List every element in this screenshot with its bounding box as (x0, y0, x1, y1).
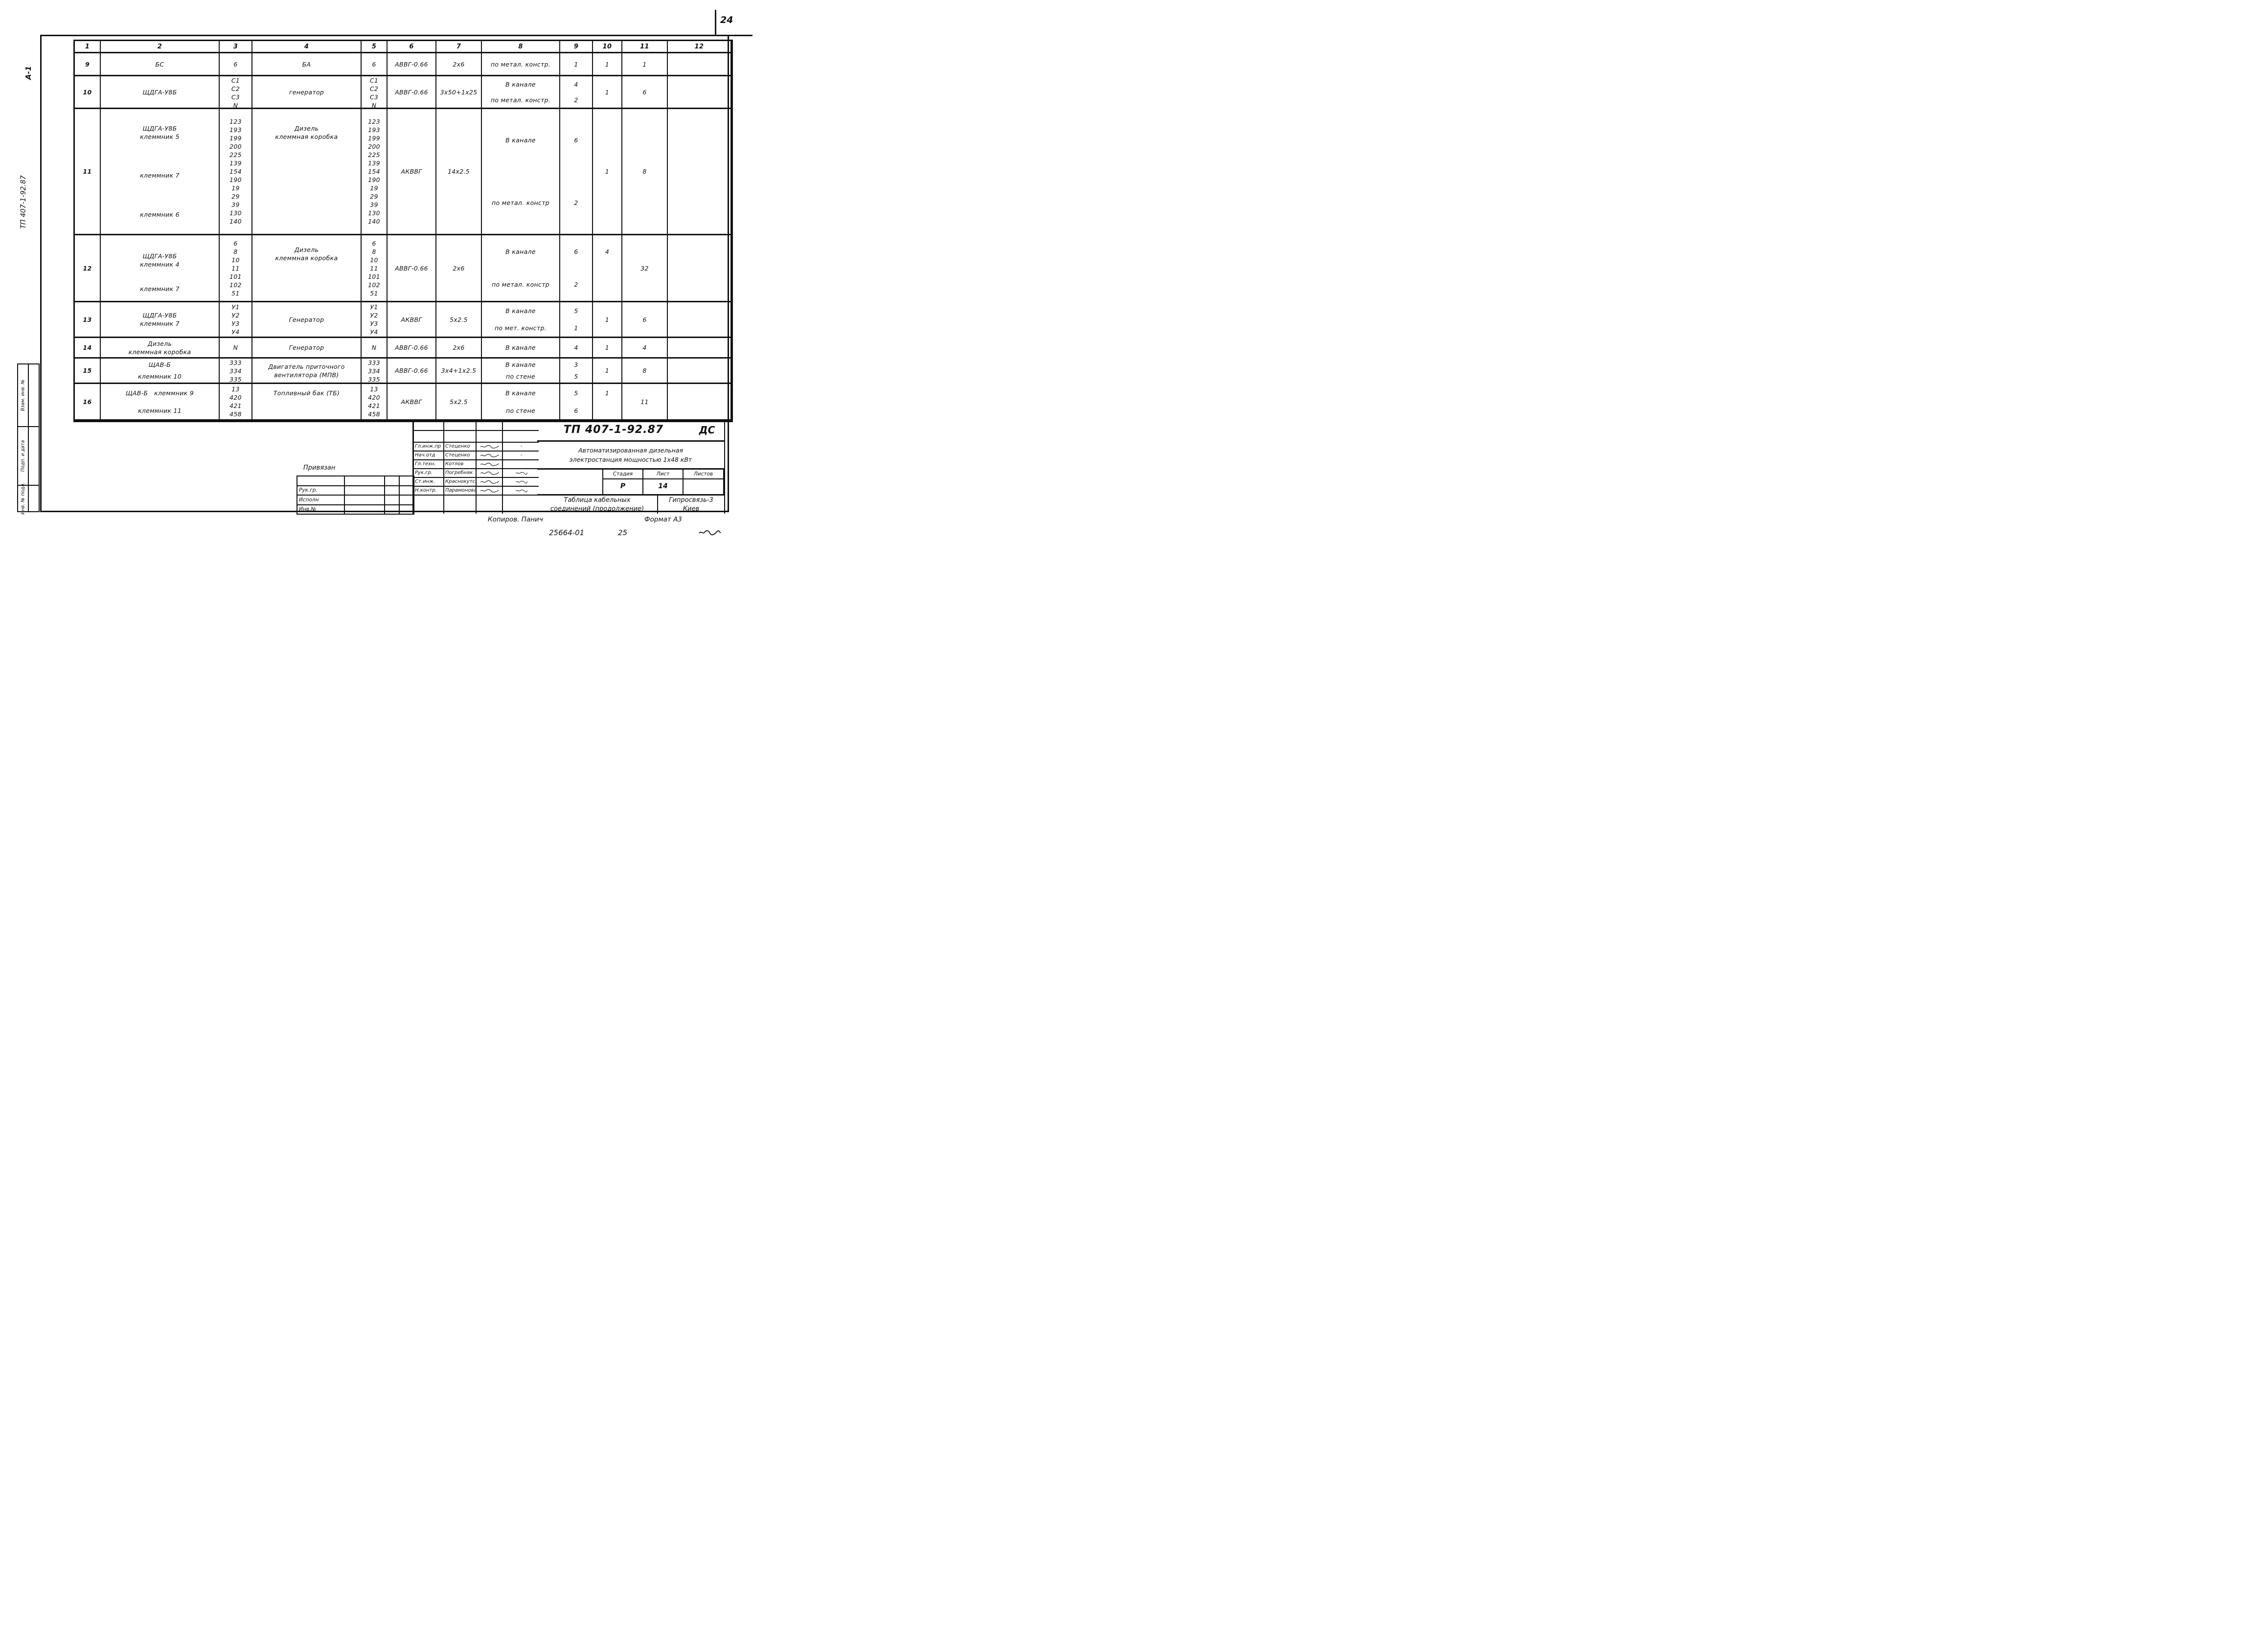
cell-r16-c6: АКВВГ (388, 384, 436, 421)
organization-box: Гипросвязь-3 Киев (658, 494, 724, 514)
cell-r9-c5: 6 (362, 53, 388, 76)
sig-empty-cell (444, 431, 477, 442)
cell-r16-c3: 13 420 421 458 (220, 384, 252, 421)
margin-stamp-label: Инв. № подл. (18, 486, 29, 511)
cell-r12-c2: ЩДГА-У8Б клеммник 4клеммник 7 (101, 235, 220, 302)
sig-empty-cell (444, 496, 477, 514)
sig-date-mark (503, 478, 539, 486)
cell-r15-c4: Двигатель приточного вентилятора (МПВ) (252, 359, 362, 384)
signature-scribble-icon (477, 452, 503, 459)
attach-empty-cell (400, 486, 412, 495)
cell-r9-c12 (668, 53, 731, 76)
sig-name: Стеценко (444, 443, 477, 451)
frame-top-extension-line (728, 35, 753, 36)
attach-empty-cell (345, 476, 385, 485)
cell-r16-c10: 1 (593, 384, 622, 421)
cell-r15-c8: В каналепо стене (482, 359, 560, 384)
cell-r9-c8: по метал. констр. (482, 53, 560, 76)
sig-role: Гл.инж.пр (414, 443, 444, 451)
cell-r10-c11: 6 (622, 76, 668, 109)
stage-value-1: Р (603, 479, 643, 494)
cell-r16-c2: ЩАВ-Б клеммник 9клеммник 11 (101, 384, 220, 421)
cell-r12-c4: Дизель клеммная коробка (252, 235, 362, 302)
header-col-5: 5 (362, 41, 388, 53)
cell-r15-c7: 3х4+1х2.5 (436, 359, 482, 384)
attach-empty-cell (345, 496, 385, 504)
cell-r14-c1: 14 (75, 338, 101, 359)
cell-r15-c1: 15 (75, 359, 101, 384)
cell-r13-c2: ЩДГА-У8Б клеммник 7 (101, 302, 220, 338)
copier-label: Копиров. Панич (488, 516, 543, 523)
header-col-9: 9 (560, 41, 593, 53)
cell-r11-c7: 14х2.5 (436, 109, 482, 235)
cell-r12-c1: 12 (75, 235, 101, 302)
cell-r12-c9: 62 (560, 235, 593, 302)
order-sheet-number: 25 (618, 528, 627, 537)
organization-line1: Гипросвязь-3 (658, 496, 724, 505)
page-number: 24 (720, 15, 733, 25)
cell-r11-c8: В каналепо метал. констр (482, 109, 560, 235)
scanned-drawing-sheet: 24 А-1 ТП 407-1-92.87 Взам. инв. №Подп. … (0, 0, 753, 551)
header-col-10: 10 (593, 41, 622, 53)
cell-r13-c7: 5х2.5 (436, 302, 482, 338)
cell-r13-c10: 1 (593, 302, 622, 338)
cell-r12-c7: 2х6 (436, 235, 482, 302)
cell-r9-c9: 1 (560, 53, 593, 76)
project-description-line2: электростанция мощностью 1х48 кВт (537, 455, 724, 464)
cell-r15-c11: 8 (622, 359, 668, 384)
cell-r11-c9: 62 (560, 109, 593, 235)
cell-r10-c5: С1 С2 С3 N (362, 76, 388, 109)
cell-r10-c7: 3х50+1х25 (436, 76, 482, 109)
header-col-12: 12 (668, 41, 731, 53)
attachment-label: Привязан (303, 464, 335, 472)
cell-r11-c11: 8 (622, 109, 668, 235)
sig-name: Погребняк (444, 469, 477, 477)
sig-name: Парамонова (444, 487, 477, 495)
cell-r12-c10: 4 (593, 235, 622, 302)
sig-date-mark: - (503, 452, 539, 459)
organization-line2: Киев (658, 505, 724, 514)
cell-r11-c2: ЩДГА-У8Б клеммник 5клеммник 7клеммник 6 (101, 109, 220, 235)
stage-header-3: Листов (684, 470, 724, 479)
margin-stamp-empty-cell (29, 364, 39, 426)
cell-r13-c8: В каналепо мет. констр. (482, 302, 560, 338)
cell-r14-c2: Дизель клеммная коробка (101, 338, 220, 359)
cell-r15-c6: АВВГ-0.66 (388, 359, 436, 384)
attach-row-label: Рук.гр. (297, 486, 345, 495)
cable-connections-table: 1234567891011129БС6БА6АВВГ-0.662х6по мет… (73, 40, 733, 422)
cell-r10-c3: С1 С2 С3 N (220, 76, 252, 109)
sig-empty-cell (414, 419, 444, 430)
cell-r13-c1: 13 (75, 302, 101, 338)
sheet-title-line2: соединений (продолжение) (537, 505, 657, 514)
cell-r16-c8: В каналепо стене (482, 384, 560, 421)
margin-stamp-empty-cell (29, 427, 39, 485)
cell-r11-c5: 123 193 199 200 225 139 154 190 19 29 39… (362, 109, 388, 235)
sig-role: Рук.гр. (414, 469, 444, 477)
attach-empty-cell (345, 505, 385, 514)
cell-r13-c5: У1 У2 У3 У4 (362, 302, 388, 338)
doc-number: ТП 407-1-92.87 (537, 424, 690, 436)
attachment-table: Рук.гр.ИсполнИнв.№ (297, 475, 414, 515)
attach-empty-cell (385, 486, 400, 495)
corner-divider-line (715, 10, 716, 35)
cell-r15-c12 (668, 359, 731, 384)
cell-r14-c4: Генератор (252, 338, 362, 359)
signature-scribble-icon (477, 443, 503, 451)
cell-r13-c3: У1 У2 У3 У4 (220, 302, 252, 338)
sig-date-mark (503, 469, 539, 477)
attach-empty-cell (345, 486, 385, 495)
sig-empty-cell (503, 496, 539, 514)
cell-r10-c1: 10 (75, 76, 101, 109)
attach-row-label: Исполн (297, 496, 345, 504)
cell-r9-c3: 6 (220, 53, 252, 76)
project-description-line1: Автоматизированная дизельная (537, 446, 724, 455)
cell-r15-c9: 35 (560, 359, 593, 384)
cell-r13-c9: 51 (560, 302, 593, 338)
sig-date-mark (503, 487, 539, 495)
stamp-scribble-icon (698, 528, 722, 536)
signature-scribble-icon (477, 469, 503, 477)
doc-code-vertical: ТП 407-1-92.87 (20, 160, 27, 244)
project-description-box: Автоматизированная дизельная электростан… (537, 442, 724, 470)
cell-r14-c10: 1 (593, 338, 622, 359)
cell-r10-c10: 1 (593, 76, 622, 109)
header-col-11: 11 (622, 41, 668, 53)
stage-value-2: 14 (643, 479, 684, 494)
cell-r14-c8: В канале (482, 338, 560, 359)
cell-r11-c1: 11 (75, 109, 101, 235)
cell-r12-c6: АВВГ-0.66 (388, 235, 436, 302)
stage-value-3 (684, 479, 724, 494)
stage-header-1: Стадия (603, 470, 643, 479)
header-col-7: 7 (436, 41, 482, 53)
cell-r14-c3: N (220, 338, 252, 359)
signature-scribble-icon (477, 487, 503, 495)
header-col-4: 4 (252, 41, 362, 53)
attach-empty-cell (385, 496, 400, 504)
sig-empty-cell (503, 419, 539, 430)
format-label-vertical: А-1 (24, 58, 33, 88)
cell-r13-c4: Генератор (252, 302, 362, 338)
cell-r16-c11: 11 (622, 384, 668, 421)
sig-empty-cell (414, 431, 444, 442)
stage-header-2: Лист (643, 470, 684, 479)
sig-empty-cell (503, 431, 539, 442)
sig-name: Стеценко (444, 452, 477, 459)
cell-r10-c12 (668, 76, 731, 109)
cell-r13-c12 (668, 302, 731, 338)
sig-date-mark (503, 460, 539, 468)
cell-r10-c8: В каналепо метал. констр. (482, 76, 560, 109)
cell-r14-c5: N (362, 338, 388, 359)
signature-scribble-icon (477, 460, 503, 468)
sig-empty-cell (444, 419, 477, 430)
drawing-frame: 1234567891011129БС6БА6АВВГ-0.662х6по мет… (40, 35, 729, 512)
doc-suffix: ДС (690, 424, 724, 436)
cell-r15-c10: 1 (593, 359, 622, 384)
sig-date-mark: - (503, 443, 539, 451)
header-col-3: 3 (220, 41, 252, 53)
title-block-strip (724, 419, 730, 514)
cell-r11-c4: Дизель клеммная коробка (252, 109, 362, 235)
sheet-title-line1: Таблица кабельных (537, 496, 657, 505)
cell-r14-c12 (668, 338, 731, 359)
order-number: 25664-01 (549, 528, 584, 537)
sheet-title-box: Таблица кабельных соединений (продолжени… (537, 494, 658, 514)
header-col-6: 6 (388, 41, 436, 53)
cell-r11-c3: 123 193 199 200 225 139 154 190 19 29 39… (220, 109, 252, 235)
header-col-1: 1 (75, 41, 101, 53)
cell-r11-c6: АКВВГ (388, 109, 436, 235)
attach-empty-cell (400, 476, 412, 485)
cell-r12-c12 (668, 235, 731, 302)
sig-empty-cell (477, 496, 503, 514)
cell-r9-c6: АВВГ-0.66 (388, 53, 436, 76)
sig-role: Нач.отд (414, 452, 444, 459)
cell-r10-c6: АВВГ-0.66 (388, 76, 436, 109)
cell-r16-c1: 16 (75, 384, 101, 421)
cell-r11-c10: 1 (593, 109, 622, 235)
attach-empty-cell (385, 476, 400, 485)
cell-r16-c7: 5х2.5 (436, 384, 482, 421)
doc-number-box: ТП 407-1-92.87 ДС (537, 419, 724, 442)
cell-r14-c7: 2х6 (436, 338, 482, 359)
attach-empty-cell (400, 496, 412, 504)
cell-r12-c5: 6 8 10 11 101 102 51 (362, 235, 388, 302)
cell-r14-c11: 4 (622, 338, 668, 359)
cell-r13-c11: 6 (622, 302, 668, 338)
header-col-2: 2 (101, 41, 220, 53)
sig-name: Котлов (444, 460, 477, 468)
cell-r9-c1: 9 (75, 53, 101, 76)
cell-r12-c8: В каналепо метал. констр (482, 235, 560, 302)
sig-name: Краснокутская (444, 478, 477, 486)
cell-r9-c4: БА (252, 53, 362, 76)
cell-r16-c9: 56 (560, 384, 593, 421)
cell-r16-c5: 13 420 421 458 (362, 384, 388, 421)
cell-r14-c6: АВВГ-0.66 (388, 338, 436, 359)
sig-empty-cell (414, 496, 444, 514)
cell-r9-c2: БС (101, 53, 220, 76)
cell-r12-c11: 32 (622, 235, 668, 302)
sig-role: Гл.техн. (414, 460, 444, 468)
sig-role: Ст.инж. (414, 478, 444, 486)
cell-r15-c2: ЩАВ-Бклеммник 10 (101, 359, 220, 384)
attach-row-label (297, 476, 345, 485)
margin-stamp-empty-cell (29, 486, 39, 511)
cell-r16-c4: Топливный бак (ТБ) (252, 384, 362, 421)
cell-r9-c11: 1 (622, 53, 668, 76)
cell-r12-c3: 6 8 10 11 101 102 51 (220, 235, 252, 302)
cell-r13-c6: АКВВГ (388, 302, 436, 338)
header-col-8: 8 (482, 41, 560, 53)
sig-empty-cell (477, 419, 503, 430)
sig-role: Н.контр. (414, 487, 444, 495)
cell-r16-c12 (668, 384, 731, 421)
cell-r14-c9: 4 (560, 338, 593, 359)
cell-r15-c5: 333 334 335 (362, 359, 388, 384)
margin-stamp-table: Взам. инв. №Подп. и датаИнв. № подл. (17, 363, 40, 512)
margin-stamp-label: Взам. инв. № (18, 364, 29, 426)
attach-row-label: Инв.№ (297, 505, 345, 514)
cell-r9-c7: 2х6 (436, 53, 482, 76)
cell-r9-c10: 1 (593, 53, 622, 76)
signature-table: Гл.инж.прСтеценко-Нач.отдСтеценко-Гл.тех… (412, 419, 539, 514)
signature-scribble-icon (477, 478, 503, 486)
cell-r10-c4: генератор (252, 76, 362, 109)
cell-r15-c3: 333 334 335 (220, 359, 252, 384)
format-label: Формат А3 (644, 516, 682, 523)
sig-empty-cell (477, 431, 503, 442)
attach-empty-cell (385, 505, 400, 514)
cell-r10-c9: 42 (560, 76, 593, 109)
cell-r11-c12 (668, 109, 731, 235)
margin-stamp-label: Подп. и дата (18, 427, 29, 485)
attach-empty-cell (400, 505, 412, 514)
stage-empty-cell (537, 470, 603, 494)
cell-r10-c2: ЩДГА-У8Б (101, 76, 220, 109)
